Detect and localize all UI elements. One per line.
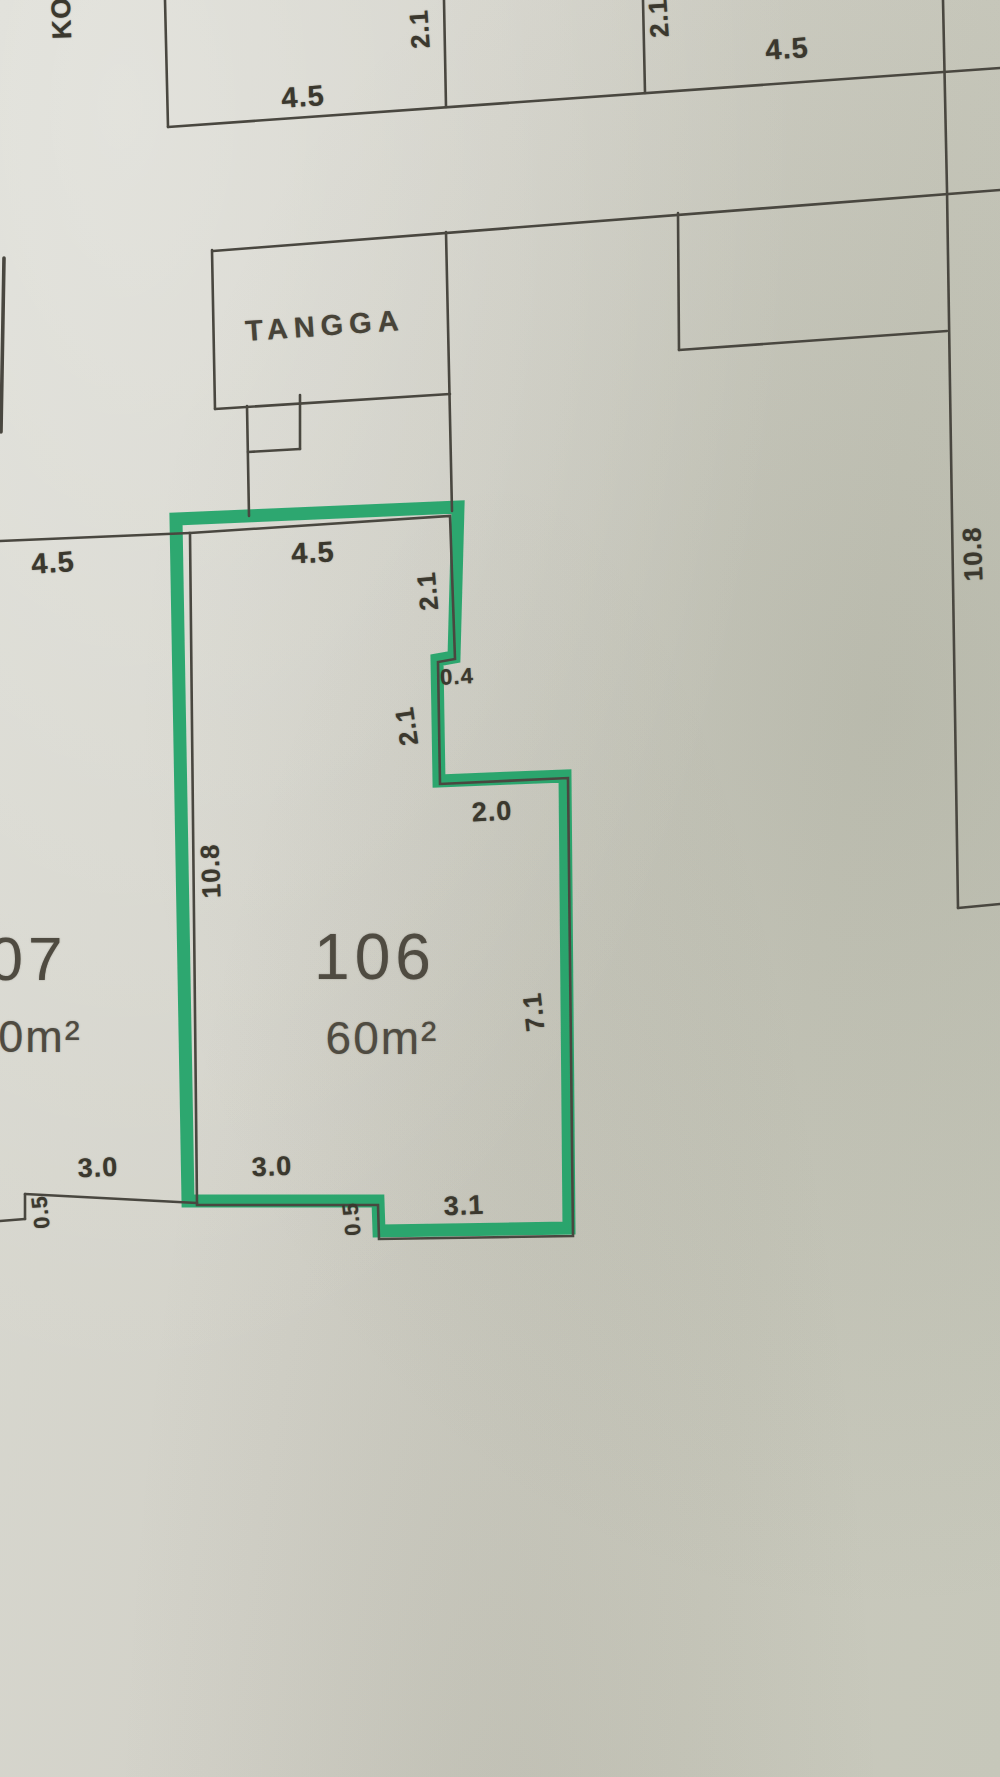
dim-unit-right-7-1: 7.1 [517, 991, 552, 1033]
dim-unit-bottom-3-1: 3.1 [443, 1190, 485, 1222]
dim-top-right-2-1: 2.1 [642, 0, 676, 39]
dim-unit-left-10-8: 10.8 [195, 843, 228, 899]
dim-unit-top-4-5: 4.5 [291, 535, 336, 570]
adjacent-unit-area: 0m² [0, 1011, 82, 1063]
dim-unit-right-mid-2-1: 2.1 [389, 704, 425, 747]
dim-top-left-2-1: 2.1 [403, 8, 437, 49]
floor-plan-photo: KO 4.5 2.1 2.1 4.5 TANGGA 10.8 4.5 4.5 2… [0, 0, 1000, 1777]
dim-left-outside-4-5: 4.5 [30, 545, 76, 581]
unit-106-highlight [176, 507, 569, 1231]
dim-corridor-top-4-5: 4.5 [280, 79, 326, 115]
corridor-label: KO [46, 0, 78, 40]
unit-number: 106 [314, 920, 436, 994]
dim-unit-bottom-3-0: 3.0 [251, 1151, 293, 1183]
dim-right-wall-10-8: 10.8 [957, 526, 990, 582]
dim-step-0-4: 0.4 [440, 663, 475, 691]
dim-top-right-4-5: 4.5 [764, 31, 810, 67]
dim-unit-right-upper-2-1: 2.1 [411, 570, 445, 612]
unit-area: 60m² [326, 1011, 439, 1065]
dim-bottom-left-0-5: 0.5 [26, 1194, 55, 1230]
adjacent-unit-number: 07 [0, 923, 67, 994]
dim-bottom-left-3-0: 3.0 [77, 1152, 119, 1184]
plan-linework [0, 0, 1000, 1777]
dim-unit-bottom-0-5: 0.5 [337, 1201, 366, 1237]
dim-step-2-0: 2.0 [471, 795, 513, 828]
